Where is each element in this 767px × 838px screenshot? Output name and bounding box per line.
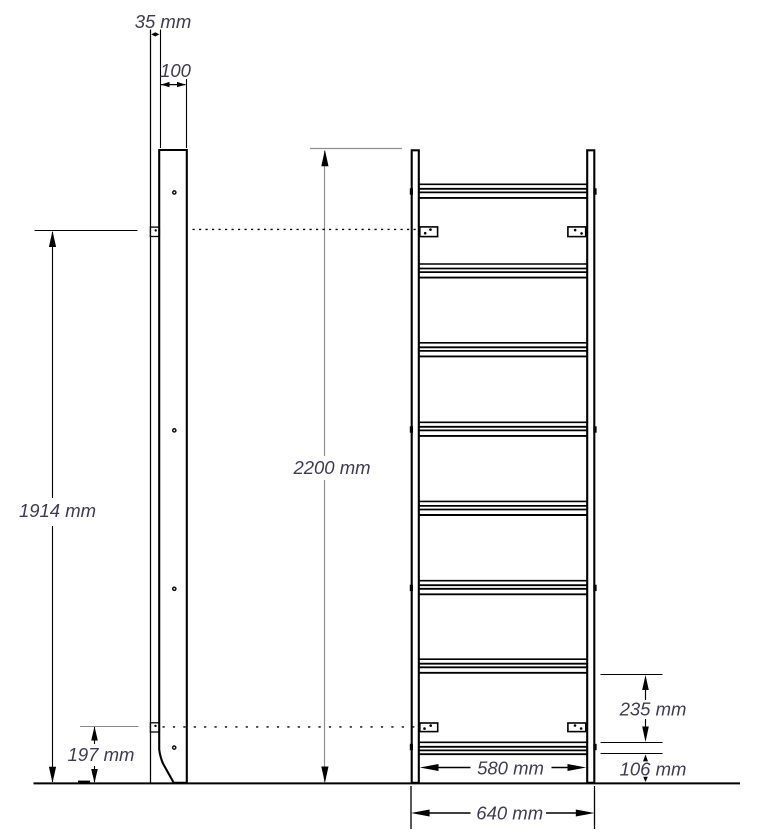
svg-text:197 mm: 197 mm xyxy=(68,744,135,765)
svg-text:580 mm: 580 mm xyxy=(477,758,544,779)
svg-text:2200 mm: 2200 mm xyxy=(292,457,370,478)
svg-text:640 mm: 640 mm xyxy=(476,803,543,824)
svg-text:106 mm: 106 mm xyxy=(620,759,687,780)
svg-text:1914 mm: 1914 mm xyxy=(19,500,96,521)
svg-text:235 mm: 235 mm xyxy=(619,699,687,720)
svg-text:35 mm: 35 mm xyxy=(135,11,192,32)
svg-text:100: 100 xyxy=(160,60,192,81)
